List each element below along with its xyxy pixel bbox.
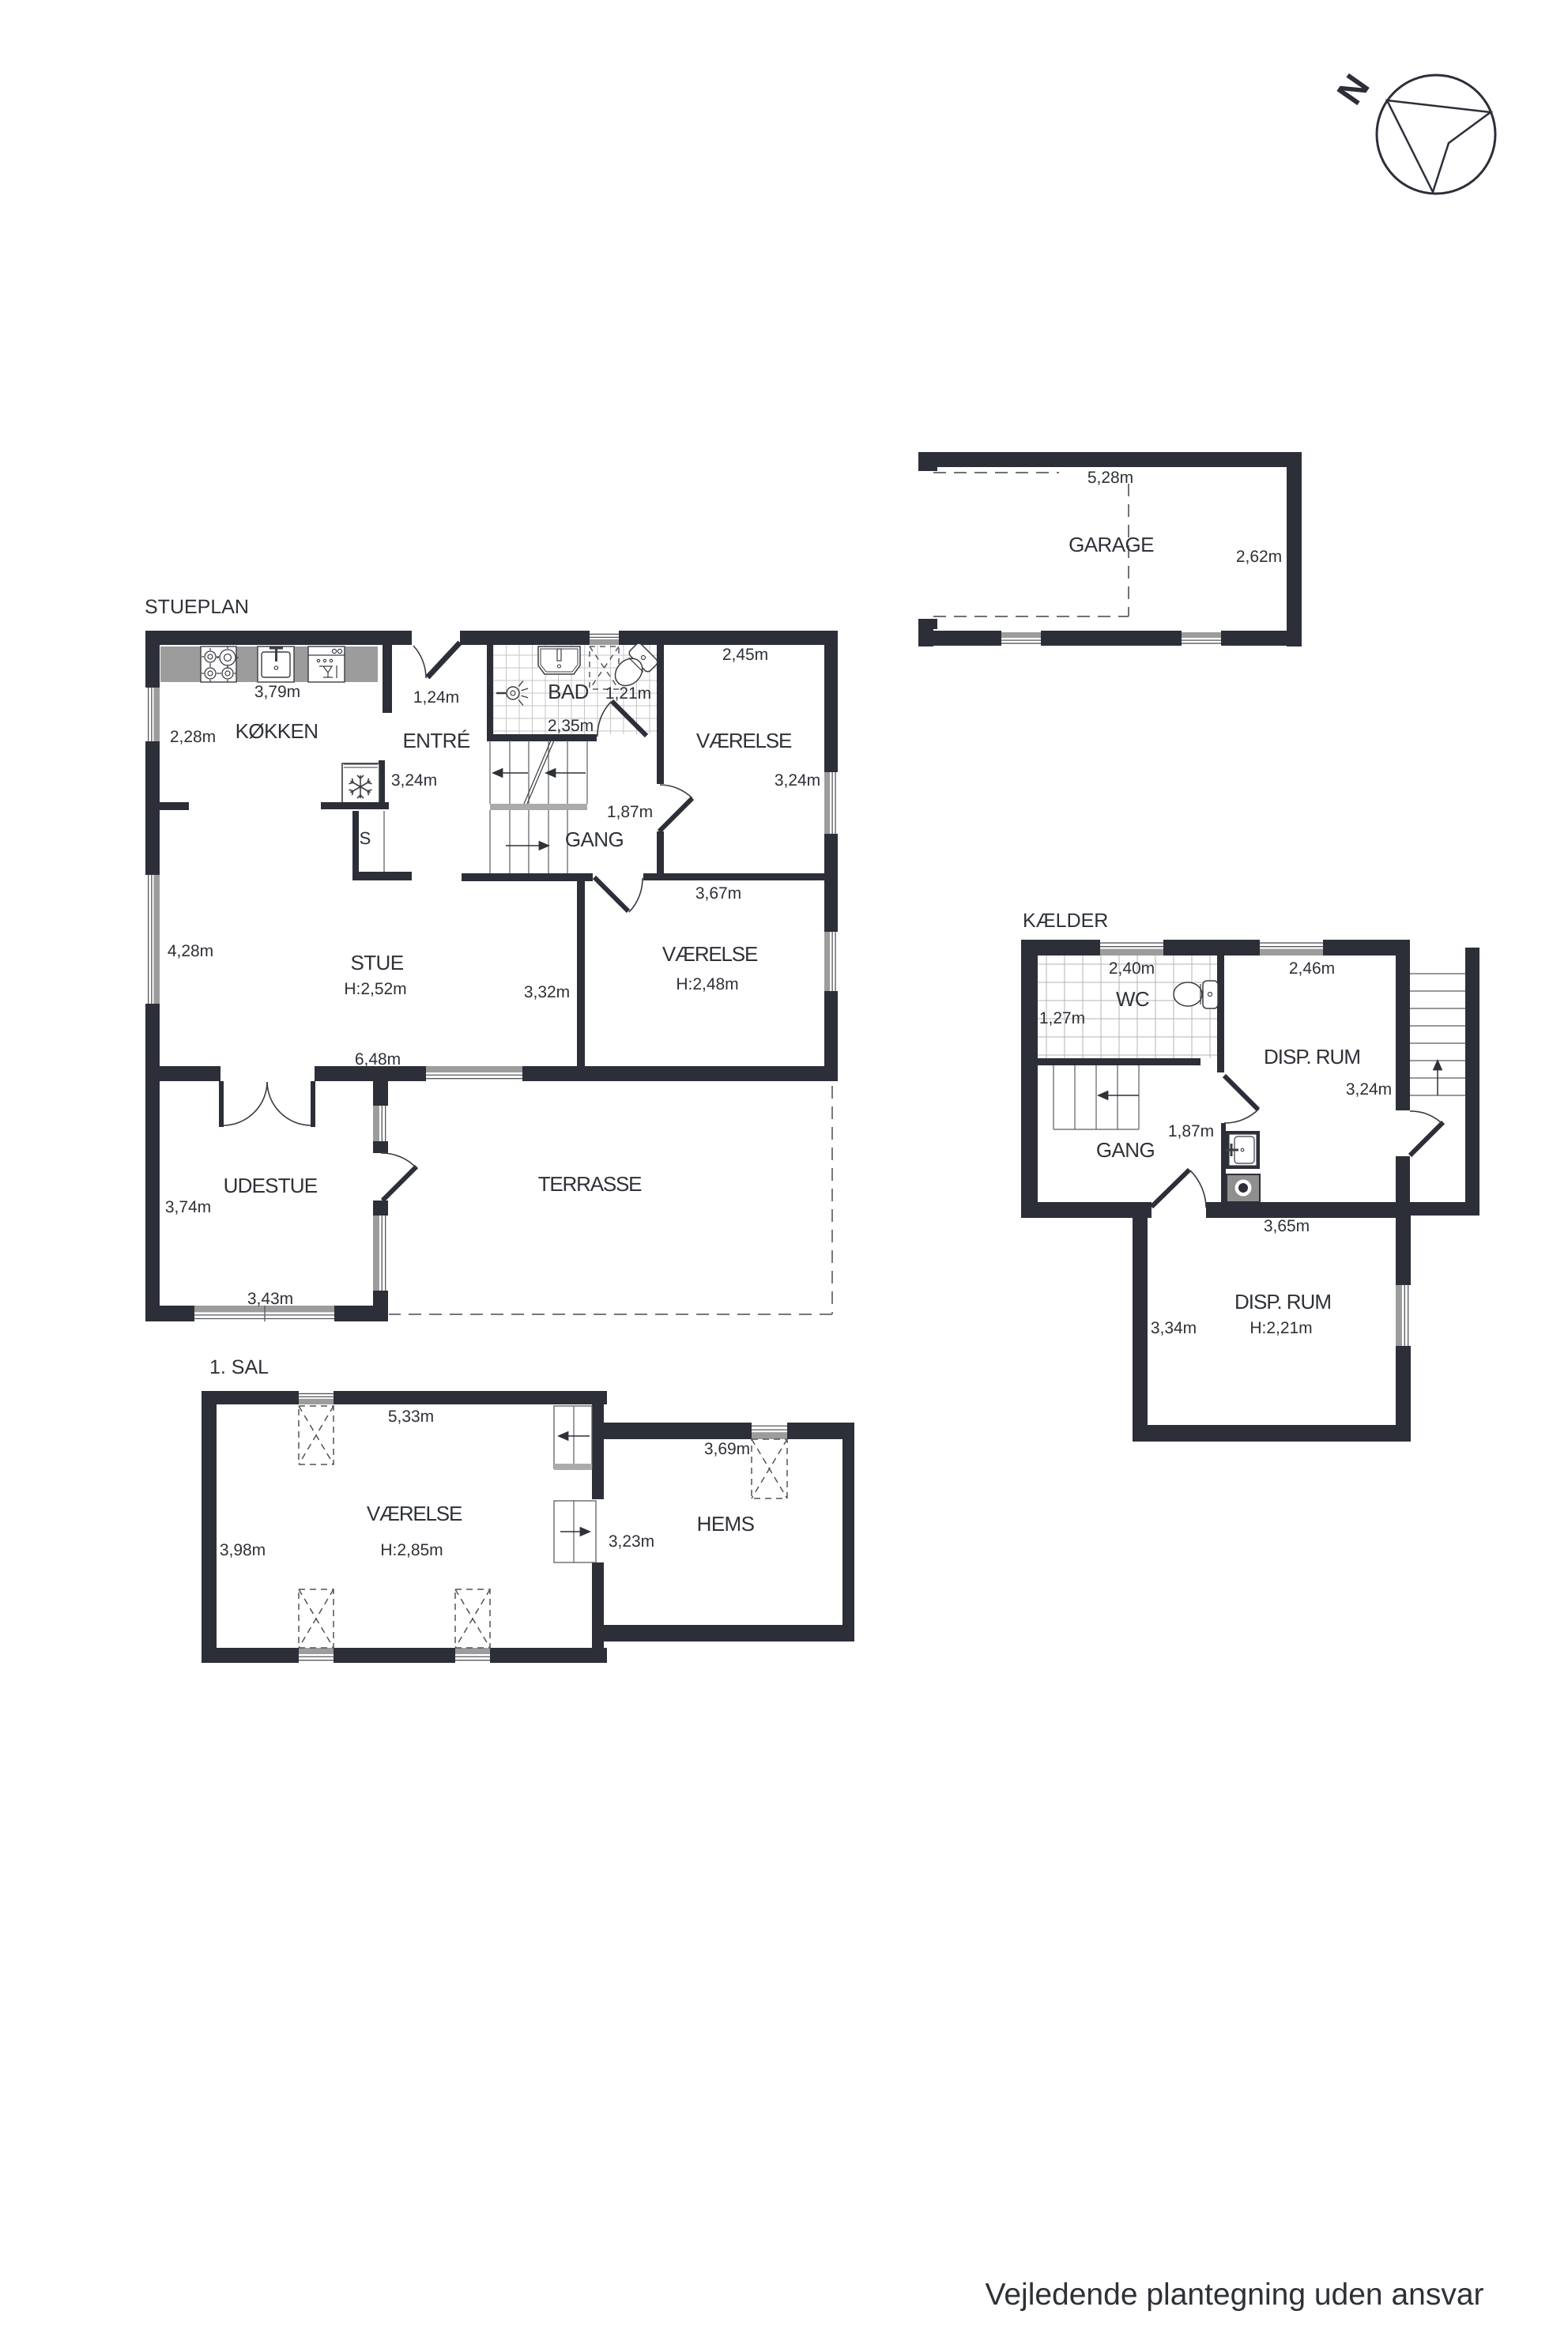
svg-text:ENTRÉ: ENTRÉ — [402, 729, 469, 752]
svg-text:S: S — [360, 828, 371, 848]
svg-text:TERRASSE: TERRASSE — [538, 1172, 642, 1196]
svg-text:GANG: GANG — [1096, 1138, 1155, 1162]
svg-text:H:2,48m: H:2,48m — [676, 975, 738, 993]
svg-text:GANG: GANG — [565, 827, 624, 851]
svg-text:DISP. RUM: DISP. RUM — [1234, 1290, 1331, 1314]
svg-text:UDESTUE: UDESTUE — [224, 1174, 318, 1197]
svg-text:3,67m: 3,67m — [695, 884, 741, 903]
svg-text:1,24m: 1,24m — [413, 688, 459, 707]
svg-text:KØKKEN: KØKKEN — [236, 719, 318, 743]
svg-text:KÆLDER: KÆLDER — [1023, 910, 1108, 932]
svg-text:H:2,21m: H:2,21m — [1249, 1319, 1312, 1337]
svg-text:5,28m: 5,28m — [1087, 469, 1133, 487]
svg-text:3,24m: 3,24m — [391, 771, 437, 790]
svg-text:DISP. RUM: DISP. RUM — [1264, 1045, 1360, 1069]
svg-text:2,62m: 2,62m — [1236, 548, 1282, 566]
svg-text:1,27m: 1,27m — [1039, 1009, 1085, 1027]
svg-text:1,87m: 1,87m — [1168, 1122, 1214, 1140]
svg-text:5,33m: 5,33m — [388, 1408, 434, 1426]
svg-text:HEMS: HEMS — [697, 1512, 755, 1536]
svg-text:3,69m: 3,69m — [704, 1440, 750, 1458]
svg-text:3,32m: 3,32m — [524, 983, 570, 1001]
svg-text:Vejledende plantegning uden an: Vejledende plantegning uden ansvar — [985, 2278, 1483, 2312]
svg-text:3,24m: 3,24m — [1346, 1080, 1392, 1099]
svg-text:1. SAL: 1. SAL — [209, 1356, 269, 1378]
svg-text:VÆRELSE: VÆRELSE — [696, 729, 792, 752]
svg-text:GARAGE: GARAGE — [1069, 533, 1154, 556]
svg-text:2,35m: 2,35m — [548, 717, 594, 735]
svg-text:3,79m: 3,79m — [254, 683, 300, 701]
svg-text:BAD: BAD — [548, 680, 589, 703]
svg-text:WC: WC — [1116, 987, 1149, 1011]
svg-text:6,48m: 6,48m — [355, 1050, 401, 1069]
svg-text:2,40m: 2,40m — [1109, 959, 1155, 978]
svg-text:2,46m: 2,46m — [1289, 959, 1335, 978]
svg-text:VÆRELSE: VÆRELSE — [662, 942, 758, 966]
svg-text:STUE: STUE — [351, 951, 404, 974]
svg-text:1,87m: 1,87m — [607, 803, 653, 821]
svg-text:1,21m: 1,21m — [605, 684, 651, 703]
svg-text:3,43m: 3,43m — [247, 1290, 293, 1308]
svg-text:3,98m: 3,98m — [220, 1541, 266, 1559]
svg-text:3,24m: 3,24m — [775, 771, 820, 790]
svg-text:3,23m: 3,23m — [609, 1532, 654, 1551]
svg-text:STUEPLAN: STUEPLAN — [145, 596, 249, 618]
svg-text:2,45m: 2,45m — [722, 646, 768, 664]
svg-text:H:2,52m: H:2,52m — [344, 980, 406, 998]
svg-text:3,74m: 3,74m — [165, 1198, 211, 1216]
svg-text:VÆRELSE: VÆRELSE — [367, 1502, 462, 1525]
svg-text:4,28m: 4,28m — [168, 942, 213, 960]
svg-text:H:2,85m: H:2,85m — [380, 1541, 443, 1559]
svg-text:3,34m: 3,34m — [1151, 1319, 1197, 1337]
svg-text:3,65m: 3,65m — [1264, 1217, 1310, 1235]
svg-text:2,28m: 2,28m — [170, 728, 216, 746]
